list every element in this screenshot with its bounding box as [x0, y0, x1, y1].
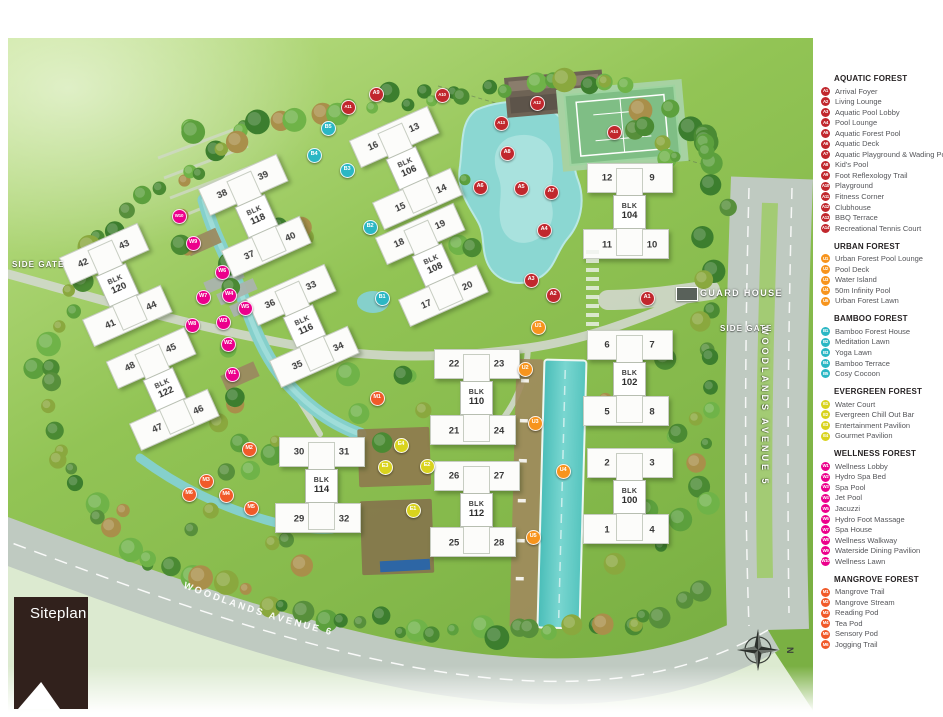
- tree-highlight: [638, 611, 645, 618]
- unit-number: 21: [449, 426, 460, 436]
- legend-badge: W6: [821, 515, 830, 524]
- legend-item-label: Recreational Tennis Court: [835, 225, 921, 233]
- legend-item-label: Spa Pool: [835, 484, 865, 492]
- legend-item: E1Water Court: [813, 399, 943, 410]
- blk-number: 114: [314, 485, 329, 495]
- legend-item-label: Sensory Pod: [835, 630, 878, 638]
- tree-highlight: [154, 183, 162, 191]
- legend-badge: A13: [821, 213, 830, 222]
- legend-badge: W9: [821, 546, 830, 555]
- legend-badge: W5: [821, 504, 830, 513]
- legend-item-label: Mangrove Stream: [835, 599, 895, 607]
- legend-item: A13BBQ Terrace: [813, 213, 943, 224]
- marker-A9: A9: [369, 87, 384, 102]
- marker-W10: W10: [172, 209, 187, 224]
- tree-highlight: [285, 110, 298, 123]
- legend-item-label: Wellness Lawn: [835, 558, 885, 566]
- marker-U5: U5: [526, 530, 541, 545]
- legend-badge: M5: [821, 630, 830, 639]
- legend-badge: B3: [821, 348, 830, 357]
- marker-U2: U2: [518, 362, 533, 377]
- legend-item: B1Bamboo Forest House: [813, 326, 943, 337]
- tree-highlight: [427, 96, 433, 102]
- tree-highlight: [248, 112, 262, 126]
- tree-highlight: [705, 404, 714, 413]
- tree-highlight: [51, 453, 61, 463]
- marker-A6: A6: [473, 180, 488, 195]
- siteplan-page: WOODLANDS AVENUE 6 N 42434144BLK12048454…: [0, 0, 943, 717]
- tree-highlight: [659, 151, 670, 162]
- tree-highlight: [721, 200, 731, 210]
- tree-highlight: [67, 464, 73, 470]
- legend-badge: A2: [821, 97, 830, 106]
- legend-item: M3Reading Pod: [813, 608, 943, 619]
- legend-item-label: Waterside Dining Pavilion: [835, 547, 920, 555]
- marker-W2: W2: [221, 337, 236, 352]
- legend-badge: B5: [821, 369, 830, 378]
- legend-badge: M4: [821, 619, 830, 628]
- tree-highlight: [594, 616, 606, 628]
- blk-number: 110: [469, 397, 484, 407]
- legend-item: A5Aquatic Forest Pool: [813, 128, 943, 139]
- marker-E1: E1: [406, 503, 421, 518]
- legend-section-mangrove: MANGROVE FORESTM1Mangrove TrailM2Mangrov…: [813, 575, 943, 650]
- legend-item-label: Aquatic Deck: [835, 140, 879, 148]
- tree-highlight: [374, 608, 384, 618]
- tree-highlight: [606, 555, 618, 567]
- tree-highlight: [277, 601, 283, 607]
- tree-highlight: [699, 494, 712, 507]
- tree-highlight: [173, 237, 184, 248]
- tree-highlight: [678, 593, 688, 603]
- legend-item: W5Jacuzzi: [813, 504, 943, 515]
- tree-highlight: [121, 204, 130, 213]
- legend-item-label: Playground: [835, 182, 873, 190]
- legend-item: A2Living Lounge: [813, 97, 943, 108]
- marker-E3: E3: [378, 460, 393, 475]
- legend-badge: A7: [821, 150, 830, 159]
- unit-number: 12: [602, 173, 613, 183]
- blk-number: 112: [469, 509, 484, 519]
- legend-item: W9Waterside Dining Pavilion: [813, 546, 943, 557]
- legend-item: M1Mangrove Trail: [813, 587, 943, 598]
- legend-item-label: Mangrove Trail: [835, 588, 885, 596]
- marker-A8: A8: [500, 146, 515, 161]
- blk-number: 100: [622, 496, 638, 506]
- marker-B1: B1: [375, 291, 390, 306]
- legend-section-aquatic: AQUATIC FORESTA1Arrival FoyerA2Living Lo…: [813, 74, 943, 234]
- marker-M3: M3: [199, 474, 214, 489]
- legend-item-label: Urban Forest Pool Lounge: [835, 255, 923, 263]
- tree-highlight: [191, 568, 205, 582]
- tree-highlight: [141, 552, 150, 561]
- marker-W8: W8: [185, 318, 200, 333]
- tree-highlight: [663, 101, 673, 111]
- tree-highlight: [43, 400, 51, 408]
- tree-highlight: [194, 169, 201, 176]
- guard-house-icon: [676, 287, 698, 301]
- tree-highlight: [263, 446, 275, 458]
- legend-item: W7Spa House: [813, 525, 943, 536]
- legend-badge: A6: [821, 140, 830, 149]
- legend-item: A3Aquatic Pool Lobby: [813, 107, 943, 118]
- legend-badge: E1: [821, 400, 830, 409]
- legend-item-label: Aquatic Forest Pool: [835, 130, 900, 138]
- legend-item: U2Pool Deck: [813, 264, 943, 275]
- unit-number: 8: [649, 407, 654, 417]
- marker-A7: A7: [544, 185, 559, 200]
- blk-number: 102: [622, 378, 638, 388]
- legend-badge: E4: [821, 432, 830, 441]
- legend-badge: A11: [821, 192, 830, 201]
- legend-badge: W2: [821, 473, 830, 482]
- marker-W3: W3: [216, 315, 231, 330]
- unit-number: 29: [294, 514, 305, 524]
- marker-A5: A5: [514, 181, 529, 196]
- legend-item: B3Yoga Lawn: [813, 347, 943, 358]
- legend-badge: A12: [821, 203, 830, 212]
- tree-highlight: [267, 537, 275, 545]
- legend-item: W2Hydro Spa Bed: [813, 472, 943, 483]
- tree-highlight: [185, 166, 192, 173]
- tree-highlight: [499, 86, 507, 94]
- tree-highlight: [295, 603, 307, 615]
- legend-badge: A8: [821, 161, 830, 170]
- tree-highlight: [314, 105, 326, 117]
- legend-section-title: BAMBOO FOREST: [834, 314, 943, 323]
- block-112: 26272528BLK112: [432, 461, 522, 559]
- block-102: 6758BLK102: [585, 330, 675, 428]
- legend-item: B4Bamboo Terrace: [813, 358, 943, 369]
- legend-item-label: Meditation Lawn: [835, 338, 890, 346]
- block-label: BLK100: [613, 480, 646, 514]
- marker-W9: W9: [186, 236, 201, 251]
- block-label: BLK114: [305, 469, 338, 503]
- legend-badge: A3: [821, 108, 830, 117]
- siteplan-title: Siteplan: [30, 605, 87, 622]
- marker-B5: B5: [321, 121, 336, 136]
- unit-number: 30: [294, 447, 305, 457]
- legend-badge: A5: [821, 129, 830, 138]
- tree-highlight: [692, 313, 703, 324]
- tree-highlight: [630, 619, 638, 627]
- legend-badge: B1: [821, 327, 830, 336]
- tree-highlight: [88, 495, 101, 508]
- tree-highlight: [69, 477, 78, 486]
- legend-badge: M1: [821, 588, 830, 597]
- marker-A11: A11: [341, 100, 356, 115]
- tree-highlight: [693, 228, 705, 240]
- tree-highlight: [690, 478, 702, 490]
- legend-item-label: Hydro Spa Bed: [835, 473, 886, 481]
- legend-item-label: Aquatic Playground & Wading Pool: [835, 151, 943, 159]
- legend-item-label: Clubhouse: [835, 204, 871, 212]
- legend-item: W1Wellness Lobby: [813, 461, 943, 472]
- legend-item: A8Kid's Pool: [813, 160, 943, 171]
- tree-highlight: [487, 628, 501, 642]
- tree-highlight: [690, 413, 698, 421]
- tree-highlight: [273, 113, 284, 124]
- tree-highlight: [543, 626, 552, 635]
- legend-item-label: Jet Pool: [835, 494, 862, 502]
- tree-highlight: [243, 463, 254, 474]
- marker-U4: U4: [556, 464, 571, 479]
- unit-number: 9: [649, 173, 654, 183]
- tree-highlight: [219, 465, 229, 475]
- tree-highlight: [163, 559, 174, 570]
- legend-item: E4Gourmet Pavilion: [813, 431, 943, 442]
- tree-highlight: [688, 455, 699, 466]
- legend-item-label: Urban Forest Lawn: [835, 297, 899, 305]
- legend-item-label: Evergreen Chill Out Bar: [835, 411, 914, 419]
- legend-item-label: Reading Pod: [835, 609, 878, 617]
- legend-item-label: Water Island: [835, 276, 877, 284]
- legend-item-label: BBQ Terrace: [835, 214, 878, 222]
- legend-item: M5Sensory Pod: [813, 629, 943, 640]
- legend-item-label: Hydro Foot Massage: [835, 516, 905, 524]
- legend-item-label: Wellness Lobby: [835, 463, 888, 471]
- legend-item: A12Clubhouse: [813, 202, 943, 213]
- block-104: 1291110BLK104: [585, 163, 675, 261]
- unit-number: 22: [449, 359, 460, 369]
- tree-highlight: [403, 100, 410, 107]
- block-110: 22232124BLK110: [432, 349, 522, 447]
- legend-badge: B4: [821, 359, 830, 368]
- legend-item-label: Wellness Walkway: [835, 537, 897, 545]
- tree-highlight: [637, 119, 648, 130]
- marker-U1: U1: [531, 320, 546, 335]
- legend-item: B5Cosy Cocoon: [813, 369, 943, 380]
- legend-badge: M2: [821, 598, 830, 607]
- legend-item-label: Jacuzzi: [835, 505, 860, 513]
- legend-badge: E2: [821, 410, 830, 419]
- tree-highlight: [351, 405, 363, 417]
- tree-highlight: [583, 78, 593, 88]
- legend-item-label: Entertainment Pavilion: [835, 422, 910, 430]
- siteplan-map: WOODLANDS AVENUE 6 N 42434144BLK12048454…: [8, 38, 813, 712]
- legend-item-label: Pool Deck: [835, 266, 869, 274]
- legend-item: M6Jogging Trail: [813, 640, 943, 651]
- tree-highlight: [355, 617, 362, 624]
- tree-highlight: [651, 609, 663, 621]
- compass-north-label: N: [785, 647, 795, 654]
- legend-panel: AQUATIC FORESTA1Arrival FoyerA2Living Lo…: [813, 0, 943, 717]
- legend-badge: A1: [821, 87, 830, 96]
- legend-item-label: Fitness Corner: [835, 193, 884, 201]
- tree-highlight: [473, 617, 486, 630]
- blk-prefix: BLK: [622, 370, 638, 377]
- marker-B2: B2: [363, 220, 378, 235]
- unit-number: 31: [339, 447, 350, 457]
- tree-highlight: [118, 505, 125, 512]
- tree-highlight: [227, 389, 238, 400]
- tree-highlight: [216, 573, 230, 587]
- tree-highlight: [204, 504, 213, 513]
- tree-highlight: [529, 74, 540, 85]
- marker-A2: A2: [546, 288, 561, 303]
- blk-number: 104: [622, 211, 638, 221]
- tree-highlight: [44, 361, 54, 371]
- legend-item: U450m Infinity Pool: [813, 285, 943, 296]
- legend-item-label: 50m Infinity Pool: [835, 287, 890, 295]
- legend-item: M2Mangrove Stream: [813, 597, 943, 608]
- tree-highlight: [241, 584, 248, 591]
- legend-badge: M3: [821, 609, 830, 618]
- legend-item: A11Fitness Corner: [813, 191, 943, 202]
- unit-number: 26: [449, 471, 460, 481]
- pedestrian-crossing: [586, 250, 599, 330]
- blk-prefix: BLK: [622, 203, 638, 210]
- marker-A1: A1: [640, 291, 655, 306]
- unit-number: 5: [604, 407, 609, 417]
- legend-badge: E3: [821, 421, 830, 430]
- legend-item: U5Urban Forest Lawn: [813, 296, 943, 307]
- tree-highlight: [216, 144, 223, 151]
- tree-highlight: [54, 322, 61, 329]
- legend-item: A4Pool Lounge: [813, 118, 943, 129]
- tree-highlight: [696, 272, 706, 282]
- legend-item: W10Wellness Lawn: [813, 556, 943, 567]
- marker-B3: B3: [340, 163, 355, 178]
- unit-number: 28: [494, 538, 505, 548]
- legend-badge: W8: [821, 536, 830, 545]
- legend-badge: A14: [821, 224, 830, 233]
- marker-W7: W7: [196, 290, 211, 305]
- tree-highlight: [318, 612, 330, 624]
- unit-number: 3: [649, 458, 654, 468]
- tree-highlight: [228, 133, 240, 145]
- tree-highlight: [135, 188, 145, 198]
- tree-highlight: [121, 540, 134, 553]
- legend-item: W8Wellness Walkway: [813, 535, 943, 546]
- block-label: BLK102: [613, 362, 646, 396]
- legend-item-label: Gourmet Pavilion: [835, 432, 893, 440]
- legend-item: U1Urban Forest Pool Lounge: [813, 254, 943, 265]
- legend-badge: U1: [821, 254, 830, 263]
- legend-item-label: Cosy Cocoon: [835, 370, 880, 378]
- tree-highlight: [396, 628, 402, 634]
- legend-section-title: EVERGREEN FOREST: [834, 387, 943, 396]
- legend-section-title: WELLNESS FOREST: [834, 449, 943, 458]
- legend-item: A1Arrival Foyer: [813, 86, 943, 97]
- unit-number: 4: [649, 525, 654, 535]
- marker-B4: B4: [307, 148, 322, 163]
- legend-item: E2Evergreen Chill Out Bar: [813, 410, 943, 421]
- legend-item-label: Jogging Trail: [835, 641, 878, 649]
- tree-highlight: [631, 101, 644, 114]
- unit-number: 23: [494, 359, 505, 369]
- bottom-fade: [8, 666, 813, 712]
- tree-highlight: [335, 615, 343, 623]
- legend-badge: U3: [821, 276, 830, 285]
- tree-highlight: [184, 122, 197, 135]
- tree-highlight: [44, 374, 54, 384]
- legend-badge: A4: [821, 118, 830, 127]
- tree-highlight: [681, 119, 695, 133]
- legend-item: W3Spa Pool: [813, 482, 943, 493]
- unit-number: 32: [339, 514, 350, 524]
- unit-number: 7: [649, 340, 654, 350]
- unit-number: 27: [494, 471, 505, 481]
- tree-highlight: [692, 582, 704, 594]
- tree-highlight: [47, 423, 57, 433]
- guard-house-label: GUARD HOUSE: [700, 288, 783, 298]
- legend-item: E3Entertainment Pavilion: [813, 420, 943, 431]
- blk-prefix: BLK: [622, 488, 638, 495]
- legend-section-wellness: WELLNESS FORESTW1Wellness LobbyW2Hydro S…: [813, 449, 943, 566]
- blk-prefix: BLK: [469, 389, 485, 396]
- legend-badge: W3: [821, 483, 830, 492]
- tree-highlight: [700, 145, 709, 154]
- legend-item: A6Aquatic Deck: [813, 139, 943, 150]
- marker-A4: A4: [537, 223, 552, 238]
- marker-W6: W6: [215, 265, 230, 280]
- marker-A12: A12: [530, 96, 545, 111]
- marker-W5: W5: [238, 301, 253, 316]
- tree-highlight: [671, 153, 677, 159]
- marker-U3: U3: [528, 416, 543, 431]
- legend-item: A10Playground: [813, 181, 943, 192]
- blk-prefix: BLK: [314, 477, 330, 484]
- legend-badge: M6: [821, 640, 830, 649]
- marker-A10: A10: [435, 88, 450, 103]
- marker-A13: A13: [494, 116, 509, 131]
- tree-highlight: [25, 360, 37, 372]
- legend-item-label: Foot Reflexology Trail: [835, 172, 908, 180]
- tree-highlight: [702, 176, 714, 188]
- legend-item-label: Pool Lounge: [835, 119, 877, 127]
- legend-badge: A10: [821, 182, 830, 191]
- legend-item-label: Yoga Lawn: [835, 349, 872, 357]
- legend-item-label: Living Lounge: [835, 98, 882, 106]
- unit-number: 11: [602, 240, 612, 250]
- unit-number: 25: [449, 538, 460, 548]
- tree-highlight: [408, 621, 421, 634]
- legend-badge: U4: [821, 286, 830, 295]
- tree-highlight: [656, 137, 665, 146]
- tree-highlight: [705, 304, 714, 313]
- marker-M1: M1: [370, 391, 385, 406]
- legend-badge: W1: [821, 462, 830, 471]
- legend-item-label: Arrival Foyer: [835, 88, 878, 96]
- legend-badge: U5: [821, 297, 830, 306]
- tree-highlight: [563, 616, 575, 628]
- legend-badge: W7: [821, 525, 830, 534]
- legend-badge: U2: [821, 265, 830, 274]
- legend-section-title: URBAN FOREST: [834, 242, 943, 251]
- marker-A3: A3: [524, 273, 539, 288]
- marker-E4: E4: [394, 438, 409, 453]
- legend-item: W4Jet Pool: [813, 493, 943, 504]
- tree-highlight: [600, 76, 607, 83]
- tree-highlight: [703, 350, 712, 359]
- tree-highlight: [521, 621, 532, 632]
- legend-item: W6Hydro Foot Massage: [813, 514, 943, 525]
- legend-item-label: Kid's Pool: [835, 161, 868, 169]
- tree-highlight: [232, 436, 242, 446]
- tree-highlight: [455, 90, 464, 99]
- avenue5-label: WOODLANDS AVENUE 5: [760, 326, 770, 487]
- unit-number: 1: [604, 525, 609, 535]
- tree-highlight: [448, 625, 454, 631]
- tree-highlight: [186, 524, 193, 531]
- block-label: BLK104: [613, 195, 646, 229]
- tree-highlight: [103, 519, 114, 530]
- marker-M2: M2: [242, 442, 257, 457]
- tree-highlight: [92, 511, 100, 519]
- legend-section-evergreen: EVERGREEN FORESTE1Water CourtE2Evergreen…: [813, 387, 943, 441]
- tree-highlight: [425, 628, 434, 637]
